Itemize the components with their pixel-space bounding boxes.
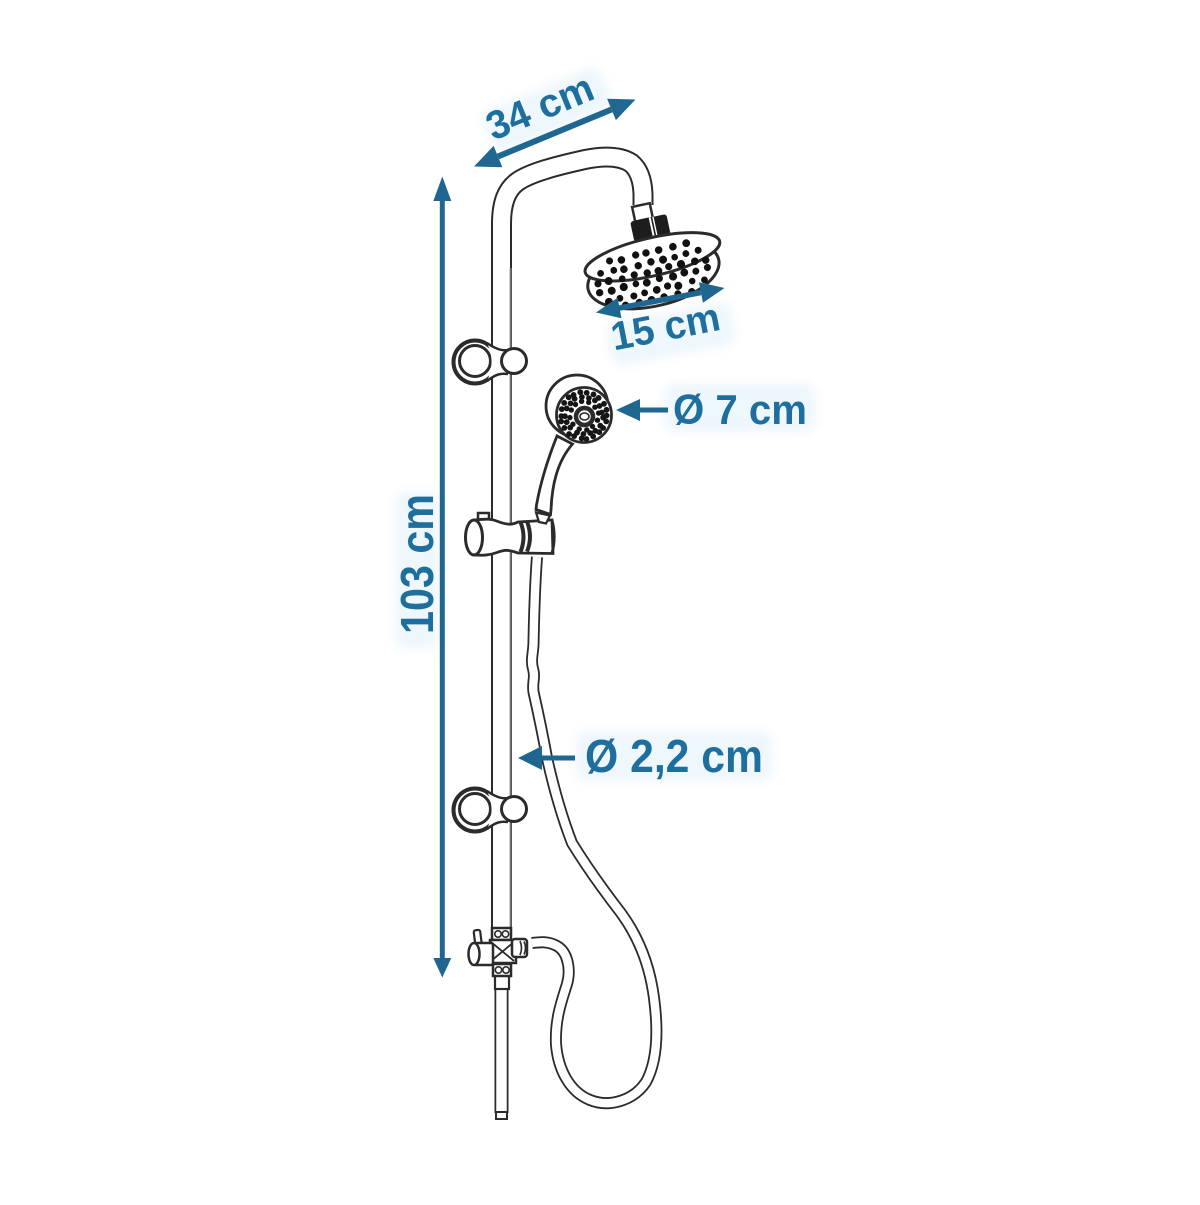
svg-text:103 cm: 103 cm — [391, 494, 443, 634]
svg-text:Ø 2,2 cm: Ø 2,2 cm — [585, 730, 763, 782]
svg-text:Ø 7 cm: Ø 7 cm — [673, 386, 807, 433]
